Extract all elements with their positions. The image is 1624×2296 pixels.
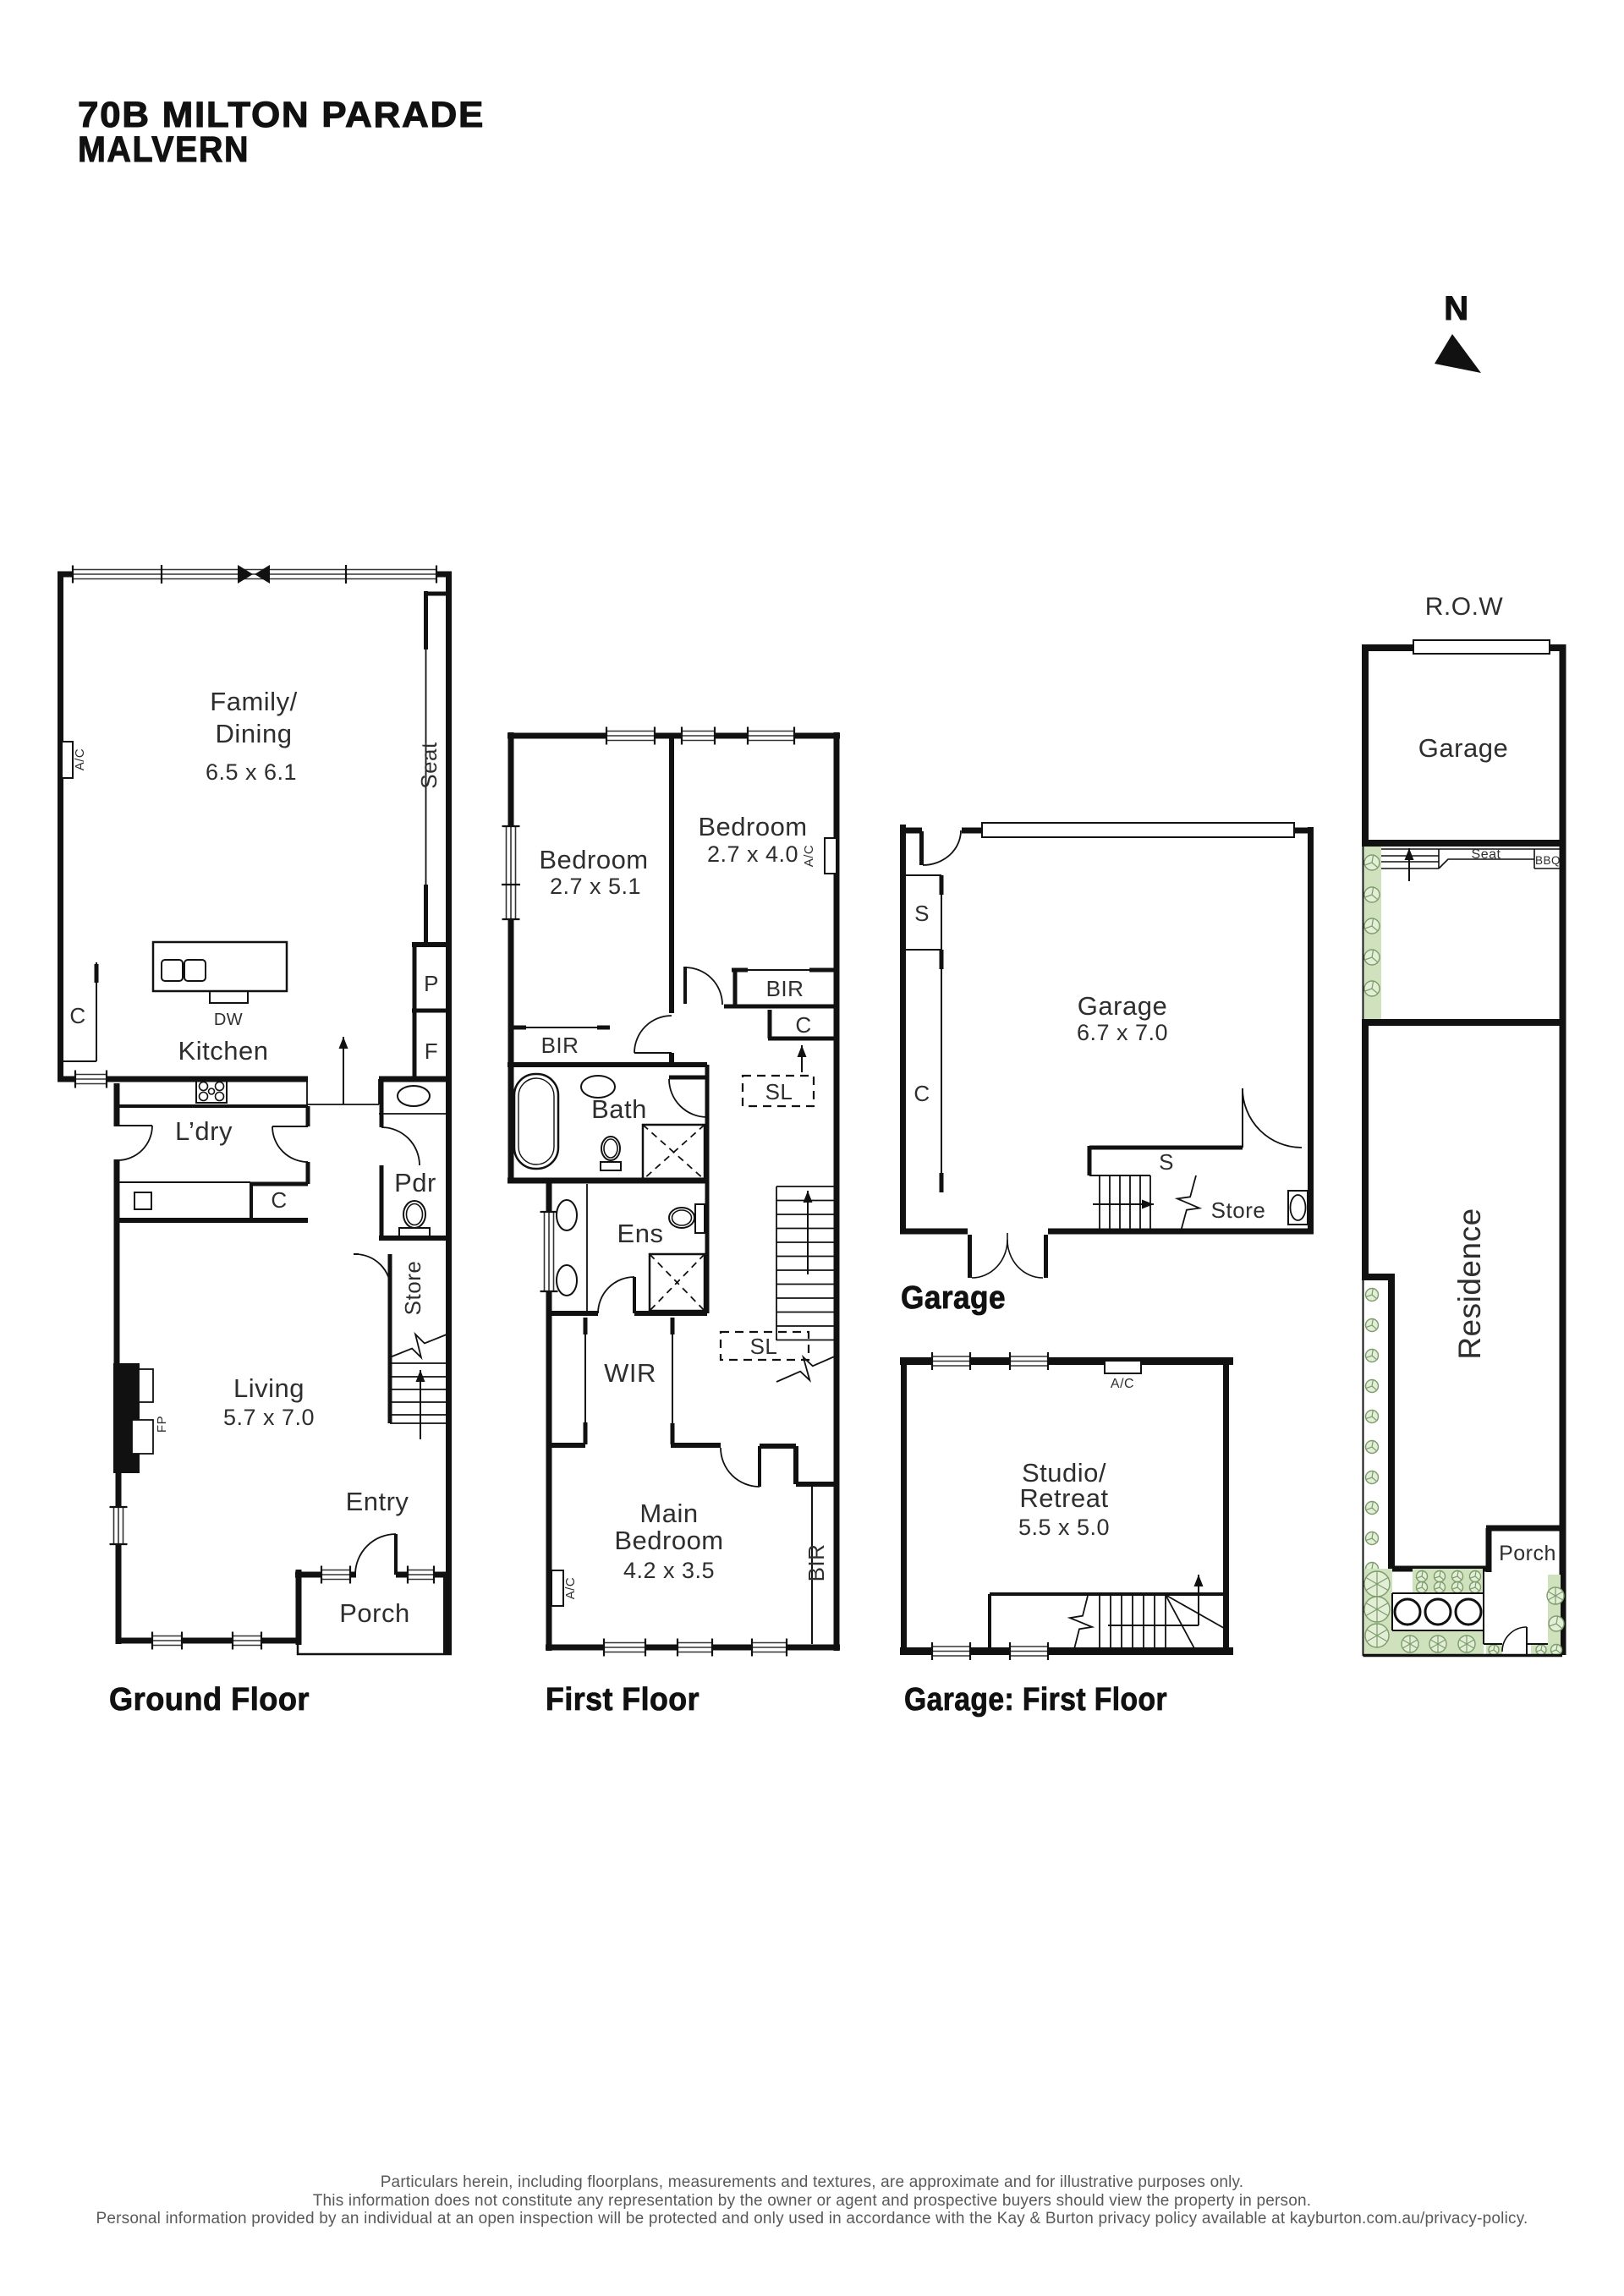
svg-text:This information does not cons: This information does not constitute any… [313,2192,1312,2210]
svg-text:4.2 x 3.5: 4.2 x 3.5 [623,1558,715,1583]
svg-text:MALVERN: MALVERN [78,129,250,170]
svg-text:Seat: Seat [416,742,442,789]
svg-text:Porch: Porch [339,1598,409,1628]
svg-text:BIR: BIR [766,976,804,1001]
svg-text:A/C: A/C [1111,1377,1134,1391]
svg-text:BBQ: BBQ [1535,854,1561,867]
svg-text:Particulars herein, including: Particulars herein, including floorplans… [381,2173,1244,2191]
svg-text:First Floor: First Floor [546,1682,700,1718]
svg-text:BIR: BIR [541,1033,579,1058]
svg-text:Garage: First Floor: Garage: First Floor [904,1682,1167,1718]
svg-text:A/C: A/C [563,1577,578,1600]
svg-text:Pdr: Pdr [394,1168,436,1197]
svg-text:6.7 x 7.0: 6.7 x 7.0 [1077,1020,1168,1045]
svg-text:Garage: Garage [1078,991,1167,1021]
svg-text:P: P [424,971,439,996]
svg-text:Garage: Garage [1418,733,1508,763]
svg-text:Bedroom: Bedroom [539,845,648,874]
svg-text:WIR: WIR [604,1358,656,1388]
svg-text:2.7 x 4.0: 2.7 x 4.0 [707,841,798,867]
svg-text:Family/: Family/ [210,687,297,716]
svg-text:L’dry: L’dry [175,1116,233,1146]
svg-text:Retreat: Retreat [1019,1483,1108,1513]
svg-text:S: S [1159,1149,1174,1175]
svg-text:Garage: Garage [901,1280,1006,1316]
svg-text:C: C [69,1003,85,1028]
svg-text:Bedroom: Bedroom [614,1526,723,1555]
svg-text:5.5 x 5.0: 5.5 x 5.0 [1018,1515,1110,1540]
svg-text:Ground Floor: Ground Floor [109,1682,310,1718]
svg-text:6.5 x 6.1: 6.5 x 6.1 [206,759,297,785]
svg-text:Store: Store [400,1261,425,1316]
svg-text:Store: Store [1211,1197,1266,1223]
svg-text:Personal information provided: Personal information provided by an indi… [96,2210,1528,2228]
svg-text:A/C: A/C [73,748,87,771]
svg-text:C: C [271,1187,287,1213]
svg-text:Living: Living [233,1373,304,1403]
svg-text:Seat: Seat [1472,847,1501,862]
svg-text:5.7 x 7.0: 5.7 x 7.0 [223,1405,315,1430]
svg-text:C: C [913,1081,930,1106]
svg-text:S: S [914,901,930,926]
svg-text:Ens: Ens [617,1219,664,1248]
svg-text:F: F [425,1038,438,1064]
svg-text:Bath: Bath [591,1094,647,1124]
svg-text:N: N [1444,290,1468,327]
svg-text:SL: SL [765,1079,793,1104]
svg-text:2.7 x 5.1: 2.7 x 5.1 [550,874,641,899]
svg-text:FP: FP [155,1416,169,1433]
svg-text:Entry: Entry [346,1487,409,1516]
svg-text:SL: SL [750,1334,778,1359]
svg-text:Kitchen: Kitchen [178,1036,269,1066]
svg-text:BIR: BIR [804,1544,829,1582]
svg-text:A/C: A/C [802,845,816,868]
svg-text:Bedroom: Bedroom [698,812,807,841]
svg-text:Porch: Porch [1499,1542,1556,1565]
svg-text:DW: DW [214,1011,243,1029]
svg-text:Residence: Residence [1452,1208,1487,1359]
svg-text:Main: Main [639,1499,698,1528]
svg-text:Dining: Dining [216,719,293,748]
svg-text:C: C [795,1012,811,1038]
svg-text:R.O.W: R.O.W [1425,593,1504,621]
